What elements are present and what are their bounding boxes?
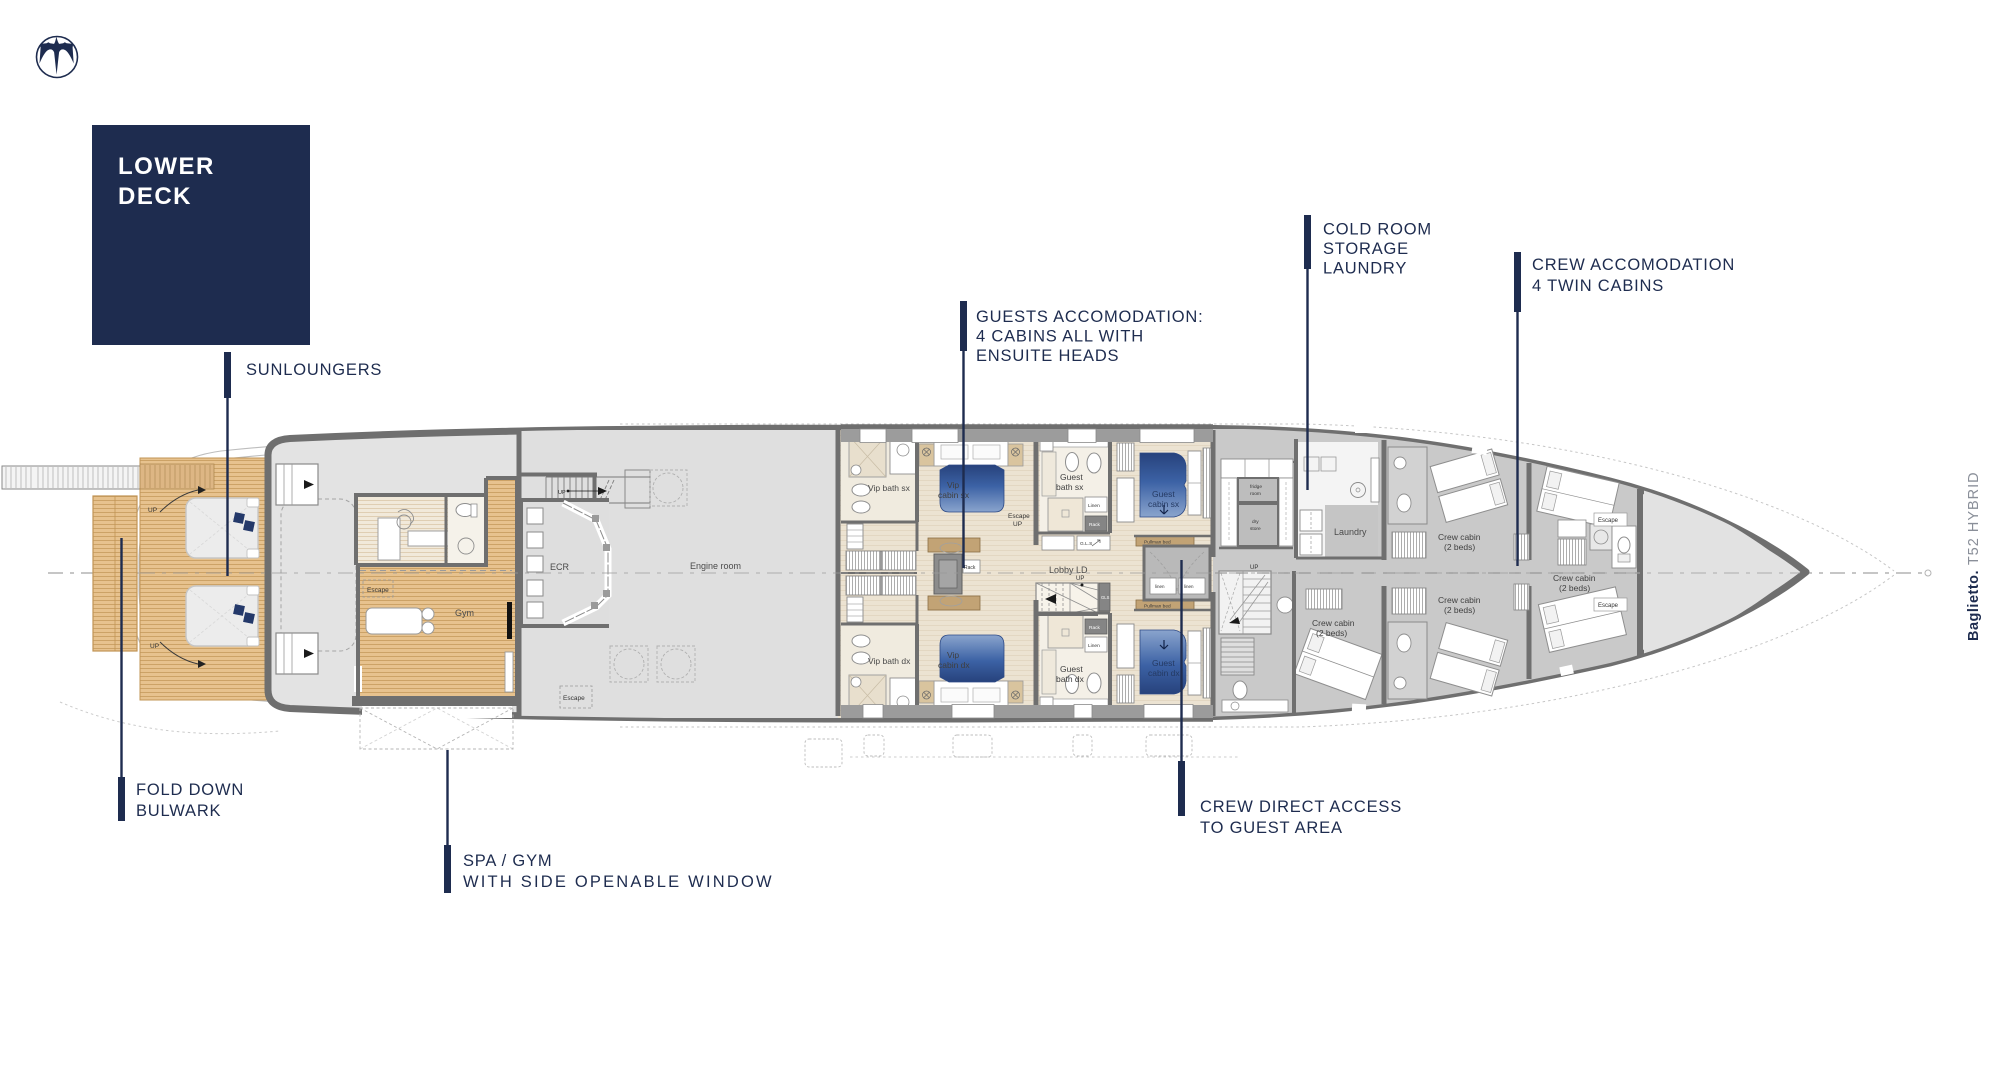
- svg-text:cabin dx: cabin dx: [1148, 668, 1180, 678]
- svg-text:G.L.S: G.L.S: [1080, 541, 1092, 547]
- svg-text:Crew cabin: Crew cabin: [1438, 532, 1481, 542]
- svg-text:Engine room: Engine room: [690, 561, 741, 571]
- svg-text:Escape: Escape: [1598, 518, 1619, 524]
- svg-text:Escape: Escape: [1008, 513, 1030, 520]
- svg-text:CREW DIRECT ACCESS: CREW DIRECT ACCESS: [1200, 798, 1402, 816]
- svg-text:Crew cabin: Crew cabin: [1312, 618, 1355, 628]
- svg-text:COLD ROOM: COLD ROOM: [1323, 221, 1432, 239]
- svg-text:UP: UP: [150, 643, 159, 650]
- svg-text:cabin sx: cabin sx: [938, 490, 970, 500]
- svg-text:SPA / GYM: SPA / GYM: [463, 852, 552, 870]
- svg-text:Linen: Linen: [1088, 643, 1100, 649]
- svg-text:cabin dx: cabin dx: [938, 660, 970, 670]
- svg-text:Vip: Vip: [947, 480, 959, 490]
- svg-text:linen: linen: [1184, 584, 1194, 589]
- svg-text:bath dx: bath dx: [1056, 674, 1085, 684]
- svg-text:Escape: Escape: [367, 587, 389, 594]
- svg-text:Vip bath sx: Vip bath sx: [868, 483, 911, 493]
- svg-text:Gym: Gym: [455, 608, 474, 618]
- svg-text:STORAGE: STORAGE: [1323, 240, 1409, 258]
- svg-text:Crew cabin: Crew cabin: [1438, 595, 1481, 605]
- svg-text:CREW ACCOMODATION: CREW ACCOMODATION: [1532, 256, 1735, 274]
- svg-text:bath sx: bath sx: [1056, 482, 1084, 492]
- svg-text:GUESTS ACCOMODATION:: GUESTS ACCOMODATION:: [976, 308, 1203, 326]
- svg-text:linen: linen: [1155, 584, 1165, 589]
- svg-text:Pullman bed: Pullman bed: [1144, 604, 1171, 610]
- svg-text:fridge: fridge: [1250, 484, 1262, 490]
- svg-text:Rack: Rack: [964, 565, 976, 571]
- svg-text:dry: dry: [1252, 519, 1259, 525]
- svg-text:(2 beds): (2 beds): [1444, 605, 1475, 615]
- svg-text:(2 beds): (2 beds): [1559, 583, 1590, 593]
- svg-text:UP: UP: [1076, 576, 1084, 582]
- svg-text:(2 beds): (2 beds): [1444, 542, 1475, 552]
- svg-text:WITH SIDE OPENABLE WINDOW: WITH SIDE OPENABLE WINDOW: [463, 873, 774, 891]
- svg-text:(2 beds): (2 beds): [1316, 628, 1347, 638]
- svg-text:4 CABINS ALL WITH: 4 CABINS ALL WITH: [976, 328, 1144, 346]
- svg-text:Crew cabin: Crew cabin: [1553, 573, 1596, 583]
- svg-text:cabin sx: cabin sx: [1148, 499, 1180, 509]
- svg-text:Guest: Guest: [1060, 472, 1083, 482]
- svg-text:Vip: Vip: [947, 650, 959, 660]
- svg-text:Rack: Rack: [1089, 522, 1101, 528]
- svg-text:Guest: Guest: [1152, 658, 1175, 668]
- svg-text:Guest: Guest: [1152, 489, 1175, 499]
- svg-text:UP: UP: [148, 507, 157, 514]
- svg-text:UP: UP: [558, 490, 566, 496]
- svg-text:BULWARK: BULWARK: [136, 802, 221, 820]
- svg-text:SUNLOUNGERS: SUNLOUNGERS: [246, 361, 382, 379]
- svg-text:4 TWIN CABINS: 4 TWIN CABINS: [1532, 277, 1664, 295]
- svg-text:TO GUEST AREA: TO GUEST AREA: [1200, 819, 1343, 837]
- svg-text:DECK: DECK: [118, 183, 192, 210]
- svg-text:GLS: GLS: [1101, 595, 1110, 600]
- svg-text:ECR: ECR: [550, 562, 570, 572]
- svg-text:LAUNDRY: LAUNDRY: [1323, 260, 1407, 278]
- svg-text:LOWER: LOWER: [118, 153, 215, 180]
- svg-text:ENSUITE HEADS: ENSUITE HEADS: [976, 347, 1119, 365]
- svg-text:Linen: Linen: [1088, 503, 1100, 509]
- svg-text:FOLD DOWN: FOLD DOWN: [136, 781, 244, 799]
- svg-text:store: store: [1250, 526, 1261, 532]
- svg-text:room: room: [1250, 491, 1261, 497]
- svg-text:Laundry: Laundry: [1334, 527, 1367, 537]
- svg-text:UP: UP: [1013, 521, 1022, 528]
- svg-text:UP: UP: [1250, 565, 1258, 571]
- svg-text:Vip bath dx: Vip bath dx: [868, 656, 911, 666]
- svg-text:Baglietto. T52 HYBRID: Baglietto. T52 HYBRID: [1966, 471, 1982, 641]
- svg-text:Guest: Guest: [1060, 664, 1083, 674]
- svg-text:Escape: Escape: [1598, 603, 1619, 609]
- svg-text:Escape: Escape: [563, 695, 585, 702]
- svg-text:Rack: Rack: [1089, 625, 1101, 631]
